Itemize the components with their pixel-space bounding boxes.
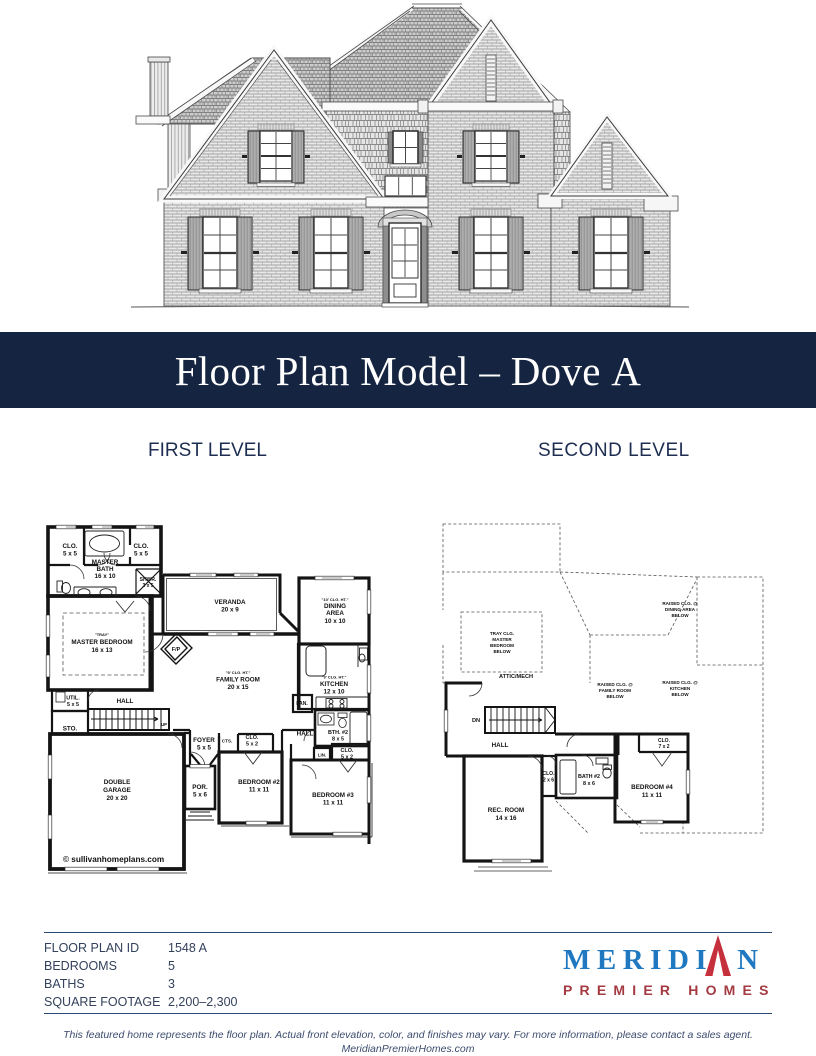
svg-text:UTIL.: UTIL. <box>66 696 80 702</box>
svg-text:MASTER: MASTER <box>492 637 512 642</box>
svg-text:PAN.: PAN. <box>296 701 308 707</box>
svg-text:BTH. #2: BTH. #2 <box>328 730 348 736</box>
svg-text:POR.: POR. <box>192 784 208 791</box>
svg-text:8 x 6: 8 x 6 <box>583 781 595 787</box>
svg-text:VERANDA: VERANDA <box>214 599 246 606</box>
svg-text:"9' CLG. HT.": "9' CLG. HT." <box>322 675 347 680</box>
svg-text:FAMILY ROOM: FAMILY ROOM <box>216 677 260 684</box>
svg-text:DINING AREA: DINING AREA <box>665 607 696 612</box>
svg-text:5 x 5: 5 x 5 <box>63 551 78 558</box>
svg-text:TRAY CLG.: TRAY CLG. <box>490 631 514 636</box>
svg-text:2 x 6: 2 x 6 <box>543 778 554 784</box>
svg-text:5 x 5: 5 x 5 <box>67 702 79 708</box>
svg-text:MASTER: MASTER <box>92 559 119 566</box>
svg-text:GARAGE: GARAGE <box>103 787 131 794</box>
svg-text:ATTIC/MECH: ATTIC/MECH <box>499 674 533 680</box>
svg-text:© sullivanhomeplans.com: © sullivanhomeplans.com <box>63 855 164 864</box>
svg-text:DINING: DINING <box>324 603 346 610</box>
svg-text:11 x 11: 11 x 11 <box>249 787 270 794</box>
svg-text:5 x 2: 5 x 2 <box>341 755 353 761</box>
svg-text:KITCHEN: KITCHEN <box>320 681 348 688</box>
svg-text:FOYER: FOYER <box>193 737 215 744</box>
svg-text:CLO.: CLO. <box>62 543 77 550</box>
svg-text:DN: DN <box>472 718 480 724</box>
svg-text:RAISED CLG. @: RAISED CLG. @ <box>662 680 698 685</box>
svg-text:11 x 11: 11 x 11 <box>642 792 663 799</box>
svg-text:20 x 20: 20 x 20 <box>106 795 128 802</box>
svg-text:BATH: BATH <box>96 566 113 573</box>
svg-text:8 x 5: 8 x 5 <box>332 737 344 743</box>
svg-text:HALL: HALL <box>492 742 509 749</box>
svg-text:14 x 16: 14 x 16 <box>495 815 517 822</box>
svg-text:"TRAY": "TRAY" <box>95 632 109 637</box>
svg-text:16 x 13: 16 x 13 <box>91 647 113 654</box>
svg-text:UP: UP <box>161 722 167 727</box>
svg-text:BELOW: BELOW <box>493 649 511 654</box>
svg-text:"9' CLG. HT.": "9' CLG. HT." <box>226 670 251 675</box>
svg-text:DOUBLE: DOUBLE <box>104 779 131 786</box>
svg-text:BELOW: BELOW <box>671 692 689 697</box>
svg-text:BEDROOM #4: BEDROOM #4 <box>631 784 673 791</box>
svg-text:BELOW: BELOW <box>671 613 689 618</box>
svg-text:MASTER BEDROOM: MASTER BEDROOM <box>71 639 132 646</box>
svg-text:REC. ROOM: REC. ROOM <box>488 807 524 814</box>
svg-text:STO.: STO. <box>63 726 78 733</box>
svg-text:11 x 11: 11 x 11 <box>323 800 344 807</box>
svg-text:12 x 10: 12 x 10 <box>323 689 345 696</box>
svg-text:5 x 5: 5 x 5 <box>197 745 212 752</box>
svg-text:5 x 5: 5 x 5 <box>134 551 149 558</box>
svg-text:HALL: HALL <box>117 698 134 705</box>
svg-text:CLO.: CLO. <box>246 735 259 741</box>
svg-text:CLO.: CLO. <box>133 543 148 550</box>
svg-text:BELOW: BELOW <box>606 694 624 699</box>
svg-text:"10' CLG. HT.": "10' CLG. HT." <box>322 597 349 602</box>
svg-text:RAISED CLG. @: RAISED CLG. @ <box>597 682 633 687</box>
svg-text:KITCHEN: KITCHEN <box>670 686 691 691</box>
svg-text:20 x 15: 20 x 15 <box>227 684 249 691</box>
svg-text:F/P: F/P <box>172 647 181 653</box>
svg-text:LIN.: LIN. <box>318 753 326 758</box>
svg-text:5 x 6: 5 x 6 <box>193 792 208 799</box>
svg-text:RAISED CLG. @: RAISED CLG. @ <box>662 601 698 606</box>
svg-text:7 x 2: 7 x 2 <box>658 744 669 750</box>
svg-text:CLO.: CLO. <box>341 748 354 754</box>
svg-text:5 x 2: 5 x 2 <box>246 742 258 748</box>
svg-text:BEDROOM #3: BEDROOM #3 <box>312 792 354 799</box>
svg-text:BEDROOM: BEDROOM <box>490 643 514 648</box>
svg-text:AREA: AREA <box>326 610 344 617</box>
svg-text:HALL: HALL <box>297 731 314 738</box>
svg-text:BATH #2: BATH #2 <box>578 774 600 780</box>
svg-text:10 x 10: 10 x 10 <box>324 618 346 625</box>
svg-text:CLO.: CLO. <box>543 771 556 777</box>
svg-text:16 x 10: 16 x 10 <box>94 573 116 580</box>
svg-text:3 x 5: 3 x 5 <box>142 583 153 589</box>
svg-text:FAMILY ROOM: FAMILY ROOM <box>599 688 631 693</box>
svg-text:BEDROOM #2: BEDROOM #2 <box>238 779 280 786</box>
svg-text:20 x 9: 20 x 9 <box>221 607 239 614</box>
svg-text:CTS.: CTS. <box>222 739 232 744</box>
